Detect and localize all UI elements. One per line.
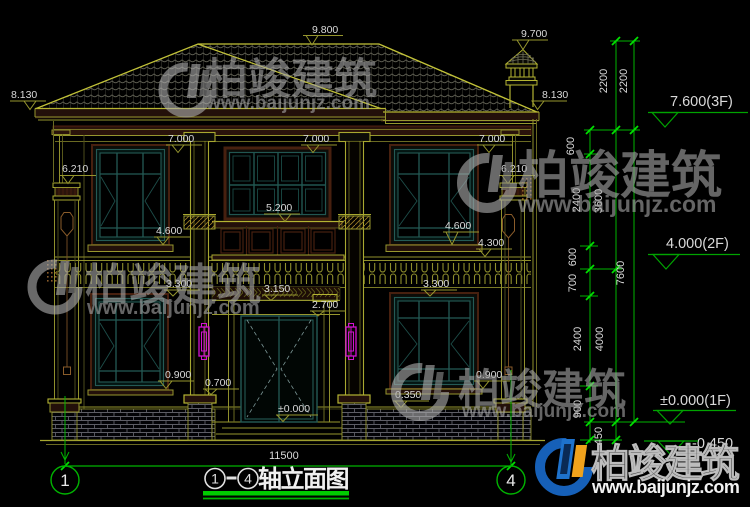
svg-text:4.000(2F): 4.000(2F) [666,236,729,252]
svg-text:7600: 7600 [615,261,627,285]
svg-text:轴立面图: 轴立面图 [258,465,348,493]
svg-text:7.000: 7.000 [479,133,505,145]
svg-text:2200: 2200 [618,69,630,93]
svg-text:±0.000: ±0.000 [278,403,310,415]
svg-text:www.baijunjz.com: www.baijunjz.com [461,401,626,422]
svg-text:5.200: 5.200 [266,202,292,214]
svg-text:700: 700 [567,274,579,292]
svg-text:www.baijunjz.com: www.baijunjz.com [86,297,260,319]
svg-text:2200: 2200 [598,69,610,93]
svg-text:7.000: 7.000 [303,133,329,145]
svg-text:1: 1 [60,471,69,490]
svg-text:4000: 4000 [594,327,606,351]
svg-text:4.600: 4.600 [156,225,182,237]
svg-text:600: 600 [567,248,579,266]
svg-text:2400: 2400 [572,327,584,351]
svg-text:11500: 11500 [269,450,299,462]
svg-text:www.baijunjz.com: www.baijunjz.com [205,93,370,114]
svg-text:www.baijunjz.com: www.baijunjz.com [517,191,717,217]
svg-text:4: 4 [506,471,515,490]
svg-text:7.000: 7.000 [168,133,194,145]
svg-text:3.300: 3.300 [423,278,449,290]
svg-text:±0.000(1F): ±0.000(1F) [660,393,731,409]
svg-text:3.150: 3.150 [264,283,290,295]
svg-text:4: 4 [244,471,252,487]
svg-text:9.800: 9.800 [312,24,338,36]
svg-text:4.300: 4.300 [478,237,504,249]
svg-text:2.700: 2.700 [312,299,338,311]
svg-text:www.baijunjz.com: www.baijunjz.com [591,477,739,497]
svg-text:0.900: 0.900 [165,369,191,381]
svg-text:8.130: 8.130 [11,89,37,101]
svg-text:7.600(3F): 7.600(3F) [670,94,733,110]
svg-text:8.130: 8.130 [542,89,568,101]
svg-text:4.600: 4.600 [445,220,471,232]
svg-text:1: 1 [211,471,219,487]
svg-text:6.210: 6.210 [62,163,88,175]
svg-text:0.700: 0.700 [205,377,231,389]
svg-text:9.700: 9.700 [521,28,547,40]
